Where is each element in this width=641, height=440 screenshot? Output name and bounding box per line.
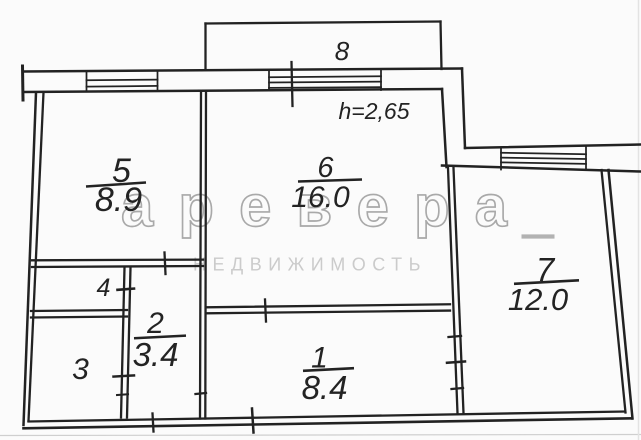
svg-text:3: 3 — [72, 353, 89, 386]
svg-text:НЕДВИЖИМОСТЬ: НЕДВИЖИМОСТЬ — [193, 255, 427, 275]
svg-text:8.9: 8.9 — [95, 181, 142, 219]
svg-text:16.0: 16.0 — [291, 181, 350, 214]
svg-text:4: 4 — [97, 274, 111, 302]
svg-text:3.4: 3.4 — [133, 336, 179, 373]
svg-text:12.0: 12.0 — [508, 282, 568, 317]
svg-text:8: 8 — [335, 36, 350, 66]
svg-text:h=2,65: h=2,65 — [339, 98, 410, 124]
svg-text:8.4: 8.4 — [302, 369, 348, 406]
